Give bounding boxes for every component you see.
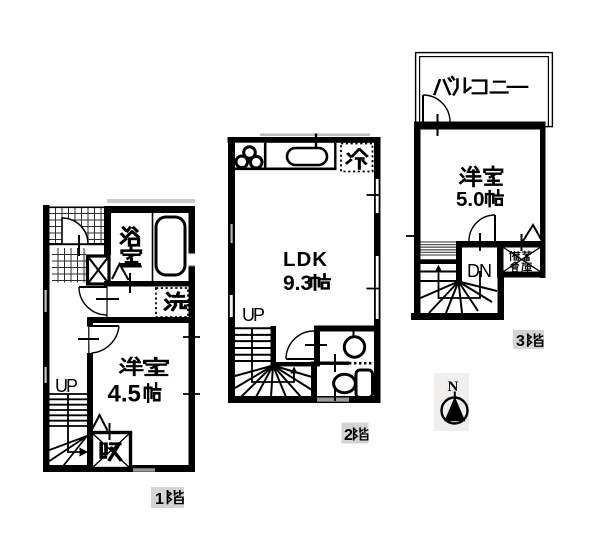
svg-text:UP: UP xyxy=(242,305,265,325)
svg-text:2: 2 xyxy=(344,427,353,444)
svg-text:3: 3 xyxy=(516,333,525,350)
svg-text:N: N xyxy=(448,379,459,395)
svg-text:UP: UP xyxy=(55,376,78,396)
svg-text:1: 1 xyxy=(155,491,164,508)
svg-text:9.3: 9.3 xyxy=(283,272,312,295)
svg-text:5.0: 5.0 xyxy=(456,188,485,211)
svg-text:LDK: LDK xyxy=(283,248,327,271)
svg-text:4.5: 4.5 xyxy=(108,381,141,408)
